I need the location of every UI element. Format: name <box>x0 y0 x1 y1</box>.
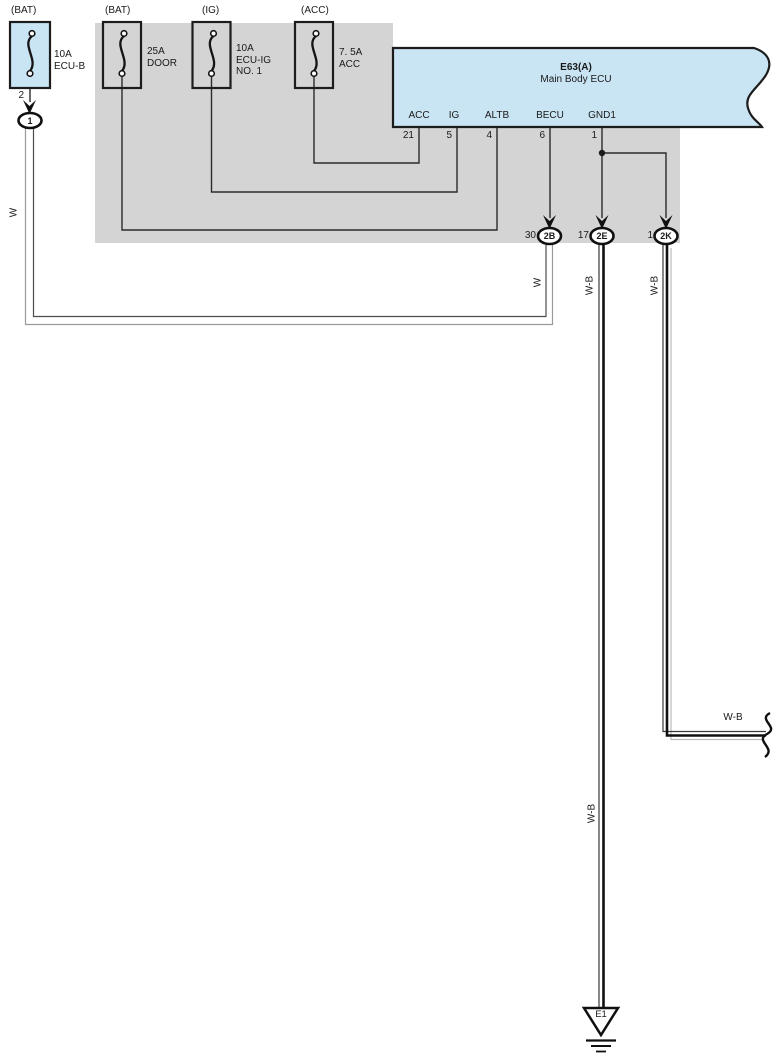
ecu-name: Main Body ECU <box>456 74 696 86</box>
ecu-pin-number-acc: 21 <box>390 130 414 141</box>
wire-label-wb-2k-upper: W-B <box>650 271 661 301</box>
connector-id-2e: 2E <box>591 231 614 241</box>
fuse-tag-ecub: (BAT) <box>11 5 36 16</box>
fuse-rating: 10A <box>54 49 72 60</box>
wire-wb-2k-shadow <box>671 248 762 740</box>
ecu-pin-label-gnd1: GND1 <box>577 110 627 121</box>
ecu-pin-label-altb: ALTB <box>472 110 522 121</box>
ground-id: E1 <box>589 1009 613 1020</box>
fuse-tag-acc: (ACC) <box>301 5 329 16</box>
diagram-graphics <box>0 0 782 1063</box>
ecu-code: E63(A) <box>456 62 696 74</box>
connector-pin-2e: 17 <box>569 230 589 241</box>
fuse-rating: 7. 5A <box>339 47 362 58</box>
connector-id-2k: 2K <box>655 231 678 241</box>
ecu-pin-number-gnd1: 1 <box>573 130 597 141</box>
fuse-tag-ecuig: (IG) <box>202 5 219 16</box>
connector-id-1: 1 <box>19 116 42 126</box>
fuse-label-ecuig: 10AECU-IGNO. 1 <box>236 43 271 78</box>
fuse-rating: 10A <box>236 43 254 54</box>
wire-label-w-right: W <box>533 268 544 298</box>
fuse-label-ecub: 10AECU-B <box>54 49 85 72</box>
connector-pin-2k: 1 <box>633 230 653 241</box>
fuse-label-acc: 7. 5AACC <box>339 47 362 70</box>
ecu-pin-number-becu: 6 <box>521 130 545 141</box>
fuse-name: DOOR <box>147 58 177 69</box>
wire-label-wb-2e-upper: W-B <box>585 271 596 301</box>
fuse-tag-door: (BAT) <box>105 5 130 16</box>
fuse-name: ACC <box>339 59 360 70</box>
fuse-out-pin: 2 <box>6 90 24 101</box>
ecu-pin-label-becu: BECU <box>525 110 575 121</box>
wire-label-wb-2e-lower: W-B <box>587 799 598 829</box>
wire-wb-2k-thick <box>667 244 766 736</box>
fuse-label-door: 25ADOOR <box>147 46 177 69</box>
wire-wb-2k-thin <box>663 244 766 732</box>
fuse-rating: 25A <box>147 46 165 57</box>
junction-dot <box>599 150 605 156</box>
ecu-pin-number-altb: 4 <box>468 130 492 141</box>
connector-pin-2b: 30 <box>516 230 536 241</box>
wire-break-icon <box>763 713 771 757</box>
connector-id-2b: 2B <box>538 231 561 241</box>
ecu-title: E63(A) Main Body ECU <box>456 62 696 85</box>
fuse-name: ECU-IG <box>236 55 271 66</box>
wiring-diagram: (BAT) (BAT) (IG) (ACC) 10AECU-B 25ADOOR … <box>0 0 782 1063</box>
fuse-name: ECU-B <box>54 61 85 72</box>
wire-label-wb-2k-branch: W-B <box>715 712 751 723</box>
ecu-pin-number-ig: 5 <box>428 130 452 141</box>
fuse-name-2: NO. 1 <box>236 66 262 77</box>
wire-label-w-left: W <box>9 198 20 228</box>
harness-panel-right <box>393 127 680 243</box>
